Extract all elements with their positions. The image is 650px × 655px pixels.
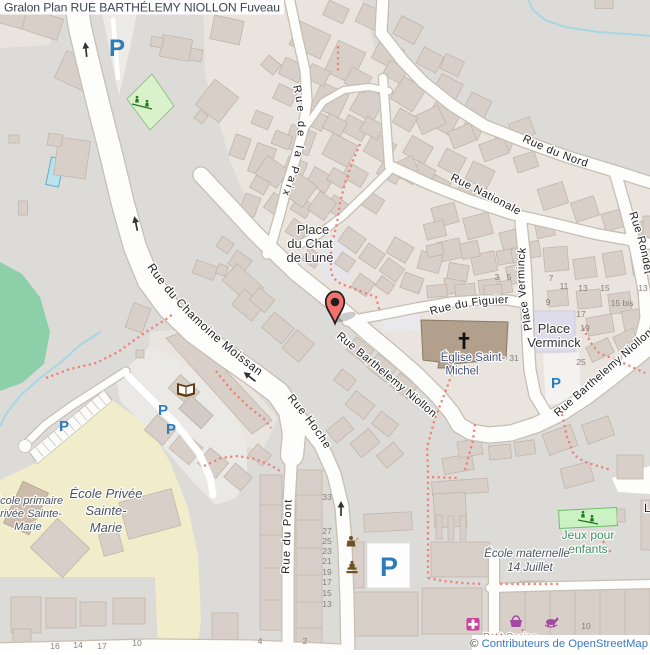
svg-text:7: 7	[549, 273, 554, 283]
svg-text:Marie: Marie	[14, 521, 42, 533]
svg-text:P: P	[380, 552, 398, 582]
svg-text:Place: Place	[538, 321, 571, 336]
svg-text:2: 2	[303, 636, 308, 646]
svg-text:© Contributeurs de OpenStreetM: © Contributeurs de OpenStreetMap	[470, 638, 648, 650]
svg-text:4: 4	[258, 636, 263, 646]
svg-text:15: 15	[322, 588, 332, 598]
svg-text:25: 25	[576, 357, 586, 367]
svg-text:19: 19	[580, 323, 590, 333]
svg-text:La: La	[644, 501, 650, 515]
svg-text:École primaire: École primaire	[0, 494, 63, 507]
svg-text:de Lune: de Lune	[287, 250, 334, 265]
svg-text:Jeux pour: Jeux pour	[562, 528, 615, 542]
svg-text:P: P	[59, 418, 69, 435]
svg-text:P: P	[551, 375, 561, 392]
svg-text:23: 23	[322, 546, 332, 556]
svg-text:École Privée: École Privée	[70, 486, 143, 501]
svg-text:25: 25	[322, 536, 332, 546]
svg-text:P: P	[158, 402, 168, 419]
svg-text:14: 14	[73, 640, 83, 650]
svg-text:31: 31	[509, 353, 519, 363]
svg-text:Sainte-: Sainte-	[85, 503, 127, 518]
svg-text:Gralon Plan RUE BARTHÉLEMY NIO: Gralon Plan RUE BARTHÉLEMY NIOLLON Fuvea…	[4, 0, 280, 15]
svg-text:Michel: Michel	[445, 366, 478, 378]
svg-text:3: 3	[495, 272, 500, 282]
svg-text:privée Sainte-: privée Sainte-	[0, 508, 62, 520]
svg-text:27: 27	[322, 526, 332, 536]
svg-text:Place: Place	[297, 222, 330, 237]
svg-text:Marie: Marie	[90, 520, 123, 535]
svg-text:15: 15	[600, 283, 610, 293]
svg-text:21: 21	[322, 556, 332, 566]
svg-text:10: 10	[132, 638, 142, 648]
svg-text:P: P	[109, 35, 125, 62]
svg-text:enfants: enfants	[568, 542, 607, 556]
svg-text:13: 13	[578, 283, 588, 293]
svg-text:Église Saint-: Église Saint-	[441, 351, 506, 364]
svg-text:13: 13	[322, 599, 332, 609]
svg-text:École maternelle: École maternelle	[484, 547, 570, 560]
svg-text:19: 19	[322, 567, 332, 577]
svg-text:16: 16	[50, 641, 60, 650]
svg-text:14 Juillet: 14 Juillet	[507, 562, 553, 574]
svg-text:5: 5	[507, 272, 512, 282]
svg-text:P: P	[166, 421, 176, 438]
svg-text:33: 33	[322, 492, 332, 502]
svg-text:Verminck: Verminck	[527, 335, 581, 350]
svg-text:9: 9	[546, 297, 551, 307]
svg-text:du Chat: du Chat	[287, 236, 333, 251]
svg-text:17: 17	[97, 641, 107, 650]
svg-text:15 bis: 15 bis	[611, 298, 634, 308]
svg-text:13: 13	[638, 283, 648, 293]
svg-text:17: 17	[576, 309, 586, 319]
svg-text:10: 10	[581, 621, 591, 631]
svg-text:11: 11	[560, 281, 569, 291]
svg-text:17: 17	[322, 577, 332, 587]
